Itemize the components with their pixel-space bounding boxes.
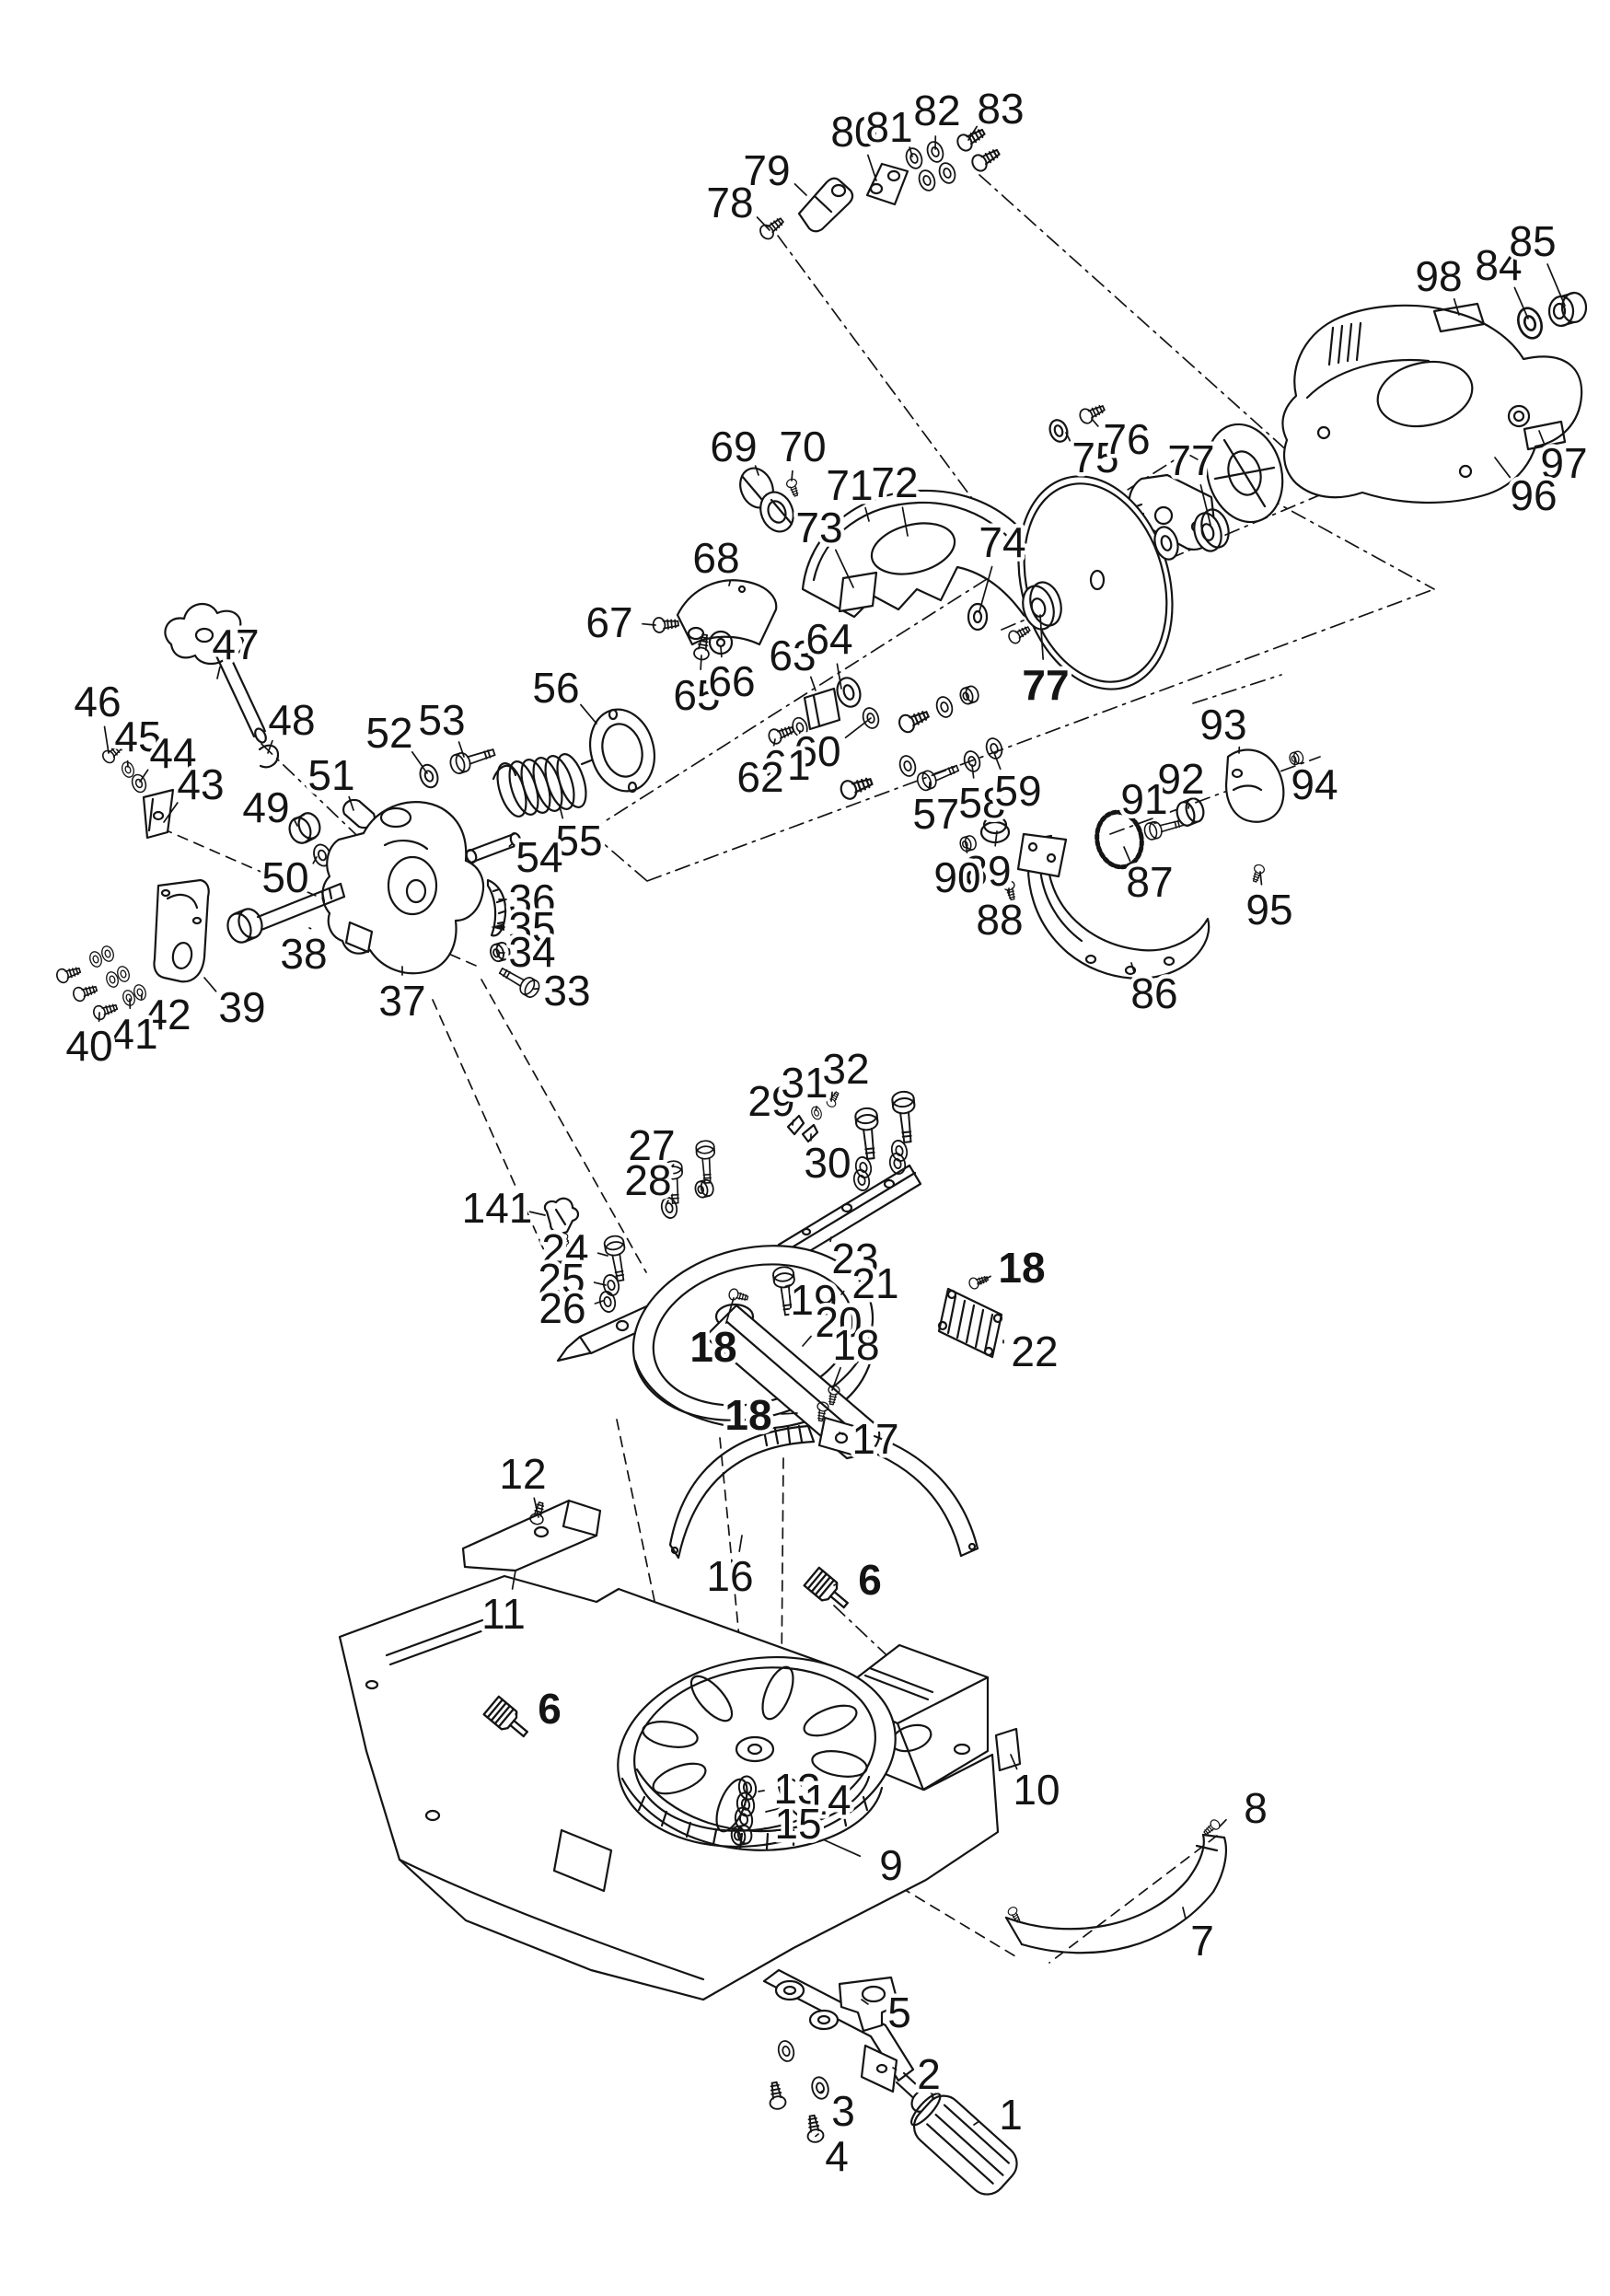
leader-line-79 (794, 184, 806, 195)
part-label-10: 10 (1013, 1766, 1060, 1814)
part-label-43: 43 (177, 760, 224, 808)
part-label-86: 86 (1130, 969, 1177, 1017)
part-label-31: 31 (781, 1059, 828, 1107)
part-label-74: 74 (979, 518, 1025, 566)
part-label-96: 96 (1510, 471, 1557, 519)
part-label-73: 73 (795, 504, 842, 551)
part-label-62: 62 (736, 753, 783, 801)
leader-line-4 (816, 2134, 818, 2136)
leader-line-76 (1092, 419, 1098, 426)
leader-line-70 (792, 471, 793, 481)
leader-line-13 (759, 1791, 764, 1792)
part-label-70: 70 (779, 423, 826, 470)
leader-line-60 (846, 718, 871, 737)
leader-line-65 (701, 655, 701, 669)
leader-line-95 (1260, 872, 1261, 885)
part-label-64: 64 (805, 615, 852, 663)
part-label-41: 41 (110, 1010, 157, 1058)
part-label-32: 32 (822, 1045, 869, 1093)
part-label-68: 68 (692, 534, 739, 582)
part-label-6: 6 (858, 1556, 882, 1604)
part-label-22: 22 (1011, 1328, 1058, 1375)
part-label-48: 48 (268, 696, 315, 744)
part-label-1: 1 (999, 2091, 1023, 2139)
part-label-40: 40 (65, 1022, 112, 1070)
leader-line-78 (758, 217, 770, 230)
leader-line-32 (831, 1092, 832, 1101)
leader-line-8 (1220, 1820, 1226, 1826)
leader-line-52 (412, 751, 427, 773)
leader-line-46 (105, 726, 109, 753)
part-label-38: 38 (280, 930, 327, 978)
part-label-141: 141 (462, 1184, 533, 1232)
part-label-18: 18 (998, 1244, 1045, 1292)
part-label-77: 77 (1167, 436, 1214, 484)
part-label-9: 9 (879, 1841, 903, 1889)
part-label-90: 90 (933, 853, 980, 901)
part-label-51: 51 (307, 751, 354, 799)
base-assembly (340, 1568, 1020, 2000)
leader-line-26 (595, 1301, 603, 1304)
part-label-87: 87 (1126, 858, 1173, 906)
part-label-83: 83 (977, 85, 1024, 133)
part-label-8: 8 (1244, 1784, 1268, 1832)
part-label-67: 67 (585, 598, 632, 646)
support-bracket-assembly (463, 1501, 600, 1571)
leader-line-92 (1188, 804, 1189, 808)
leader-line-68 (729, 581, 730, 586)
leader-line-85 (1547, 264, 1565, 306)
part-label-71: 71 (826, 461, 873, 509)
part-label-30: 30 (804, 1139, 851, 1187)
part-label-79: 79 (743, 146, 790, 194)
leader-line-58 (972, 765, 974, 778)
part-label-91: 91 (1120, 775, 1167, 823)
part-label-39: 39 (218, 983, 265, 1031)
part-label-18: 18 (724, 1391, 771, 1439)
leader-line-38 (309, 928, 311, 929)
arbor-nut-85 (1549, 293, 1586, 326)
turntable-assembly (545, 1090, 1002, 1558)
part-label-7: 7 (1190, 1917, 1214, 1965)
leader-line-18 (782, 1413, 797, 1414)
part-label-15: 15 (774, 1800, 821, 1848)
part-label-66: 66 (708, 657, 755, 705)
part-label-6: 6 (538, 1685, 562, 1733)
part-label-72: 72 (871, 458, 918, 506)
part-label-18: 18 (832, 1321, 879, 1369)
part-label-76: 76 (1103, 415, 1150, 463)
part-label-94: 94 (1291, 760, 1338, 808)
part-label-98: 98 (1415, 252, 1462, 300)
leader-line-84 (1514, 288, 1528, 319)
diagram-canvas: 7879808182839884859796697071727374757677… (0, 0, 1610, 2296)
part-label-37: 37 (378, 977, 425, 1025)
part-label-33: 33 (543, 967, 590, 1015)
part-label-2: 2 (917, 2050, 941, 2098)
part-label-5: 5 (887, 1989, 911, 2036)
part-label-18: 18 (689, 1323, 736, 1371)
part-label-93: 93 (1199, 701, 1246, 748)
leader-line-66 (721, 647, 722, 656)
part-label-59: 59 (994, 767, 1041, 815)
leader-line-54 (509, 844, 512, 846)
part-label-4: 4 (825, 2132, 849, 2180)
leader-line-16 (739, 1536, 742, 1551)
leader-line-7 (1183, 1908, 1186, 1919)
part-label-88: 88 (976, 896, 1023, 944)
leader-line-80 (868, 156, 876, 180)
part-label-95: 95 (1245, 886, 1292, 933)
part-label-3: 3 (831, 2087, 855, 2135)
part-label-82: 82 (913, 87, 960, 134)
part-label-12: 12 (499, 1450, 546, 1498)
leader-line-39 (204, 978, 216, 991)
leader-line-53 (459, 742, 464, 757)
leader-line-56 (581, 705, 597, 724)
part-label-53: 53 (418, 696, 465, 744)
leader-line-47 (217, 667, 220, 678)
part-label-16: 16 (706, 1552, 753, 1600)
part-label-77: 77 (1022, 661, 1069, 709)
part-label-17: 17 (851, 1415, 898, 1463)
part-label-54: 54 (515, 833, 562, 881)
leader-line-6 (515, 1712, 516, 1714)
part-label-52: 52 (365, 709, 412, 757)
part-label-49: 49 (242, 783, 289, 831)
exploded-parts-diagram: 7879808182839884859796697071727374757677… (0, 0, 1610, 2296)
part-label-50: 50 (261, 853, 308, 901)
part-label-28: 28 (624, 1156, 671, 1204)
part-label-57: 57 (912, 790, 959, 838)
part-label-85: 85 (1509, 217, 1556, 265)
coil-spring-55 (492, 750, 600, 819)
part-label-56: 56 (532, 664, 579, 712)
part-label-11: 11 (481, 1590, 526, 1638)
part-label-69: 69 (710, 423, 757, 470)
part-label-47: 47 (212, 620, 259, 668)
part-label-26: 26 (539, 1284, 585, 1332)
leader-line-24 (598, 1253, 608, 1256)
part-label-81: 81 (865, 103, 912, 151)
